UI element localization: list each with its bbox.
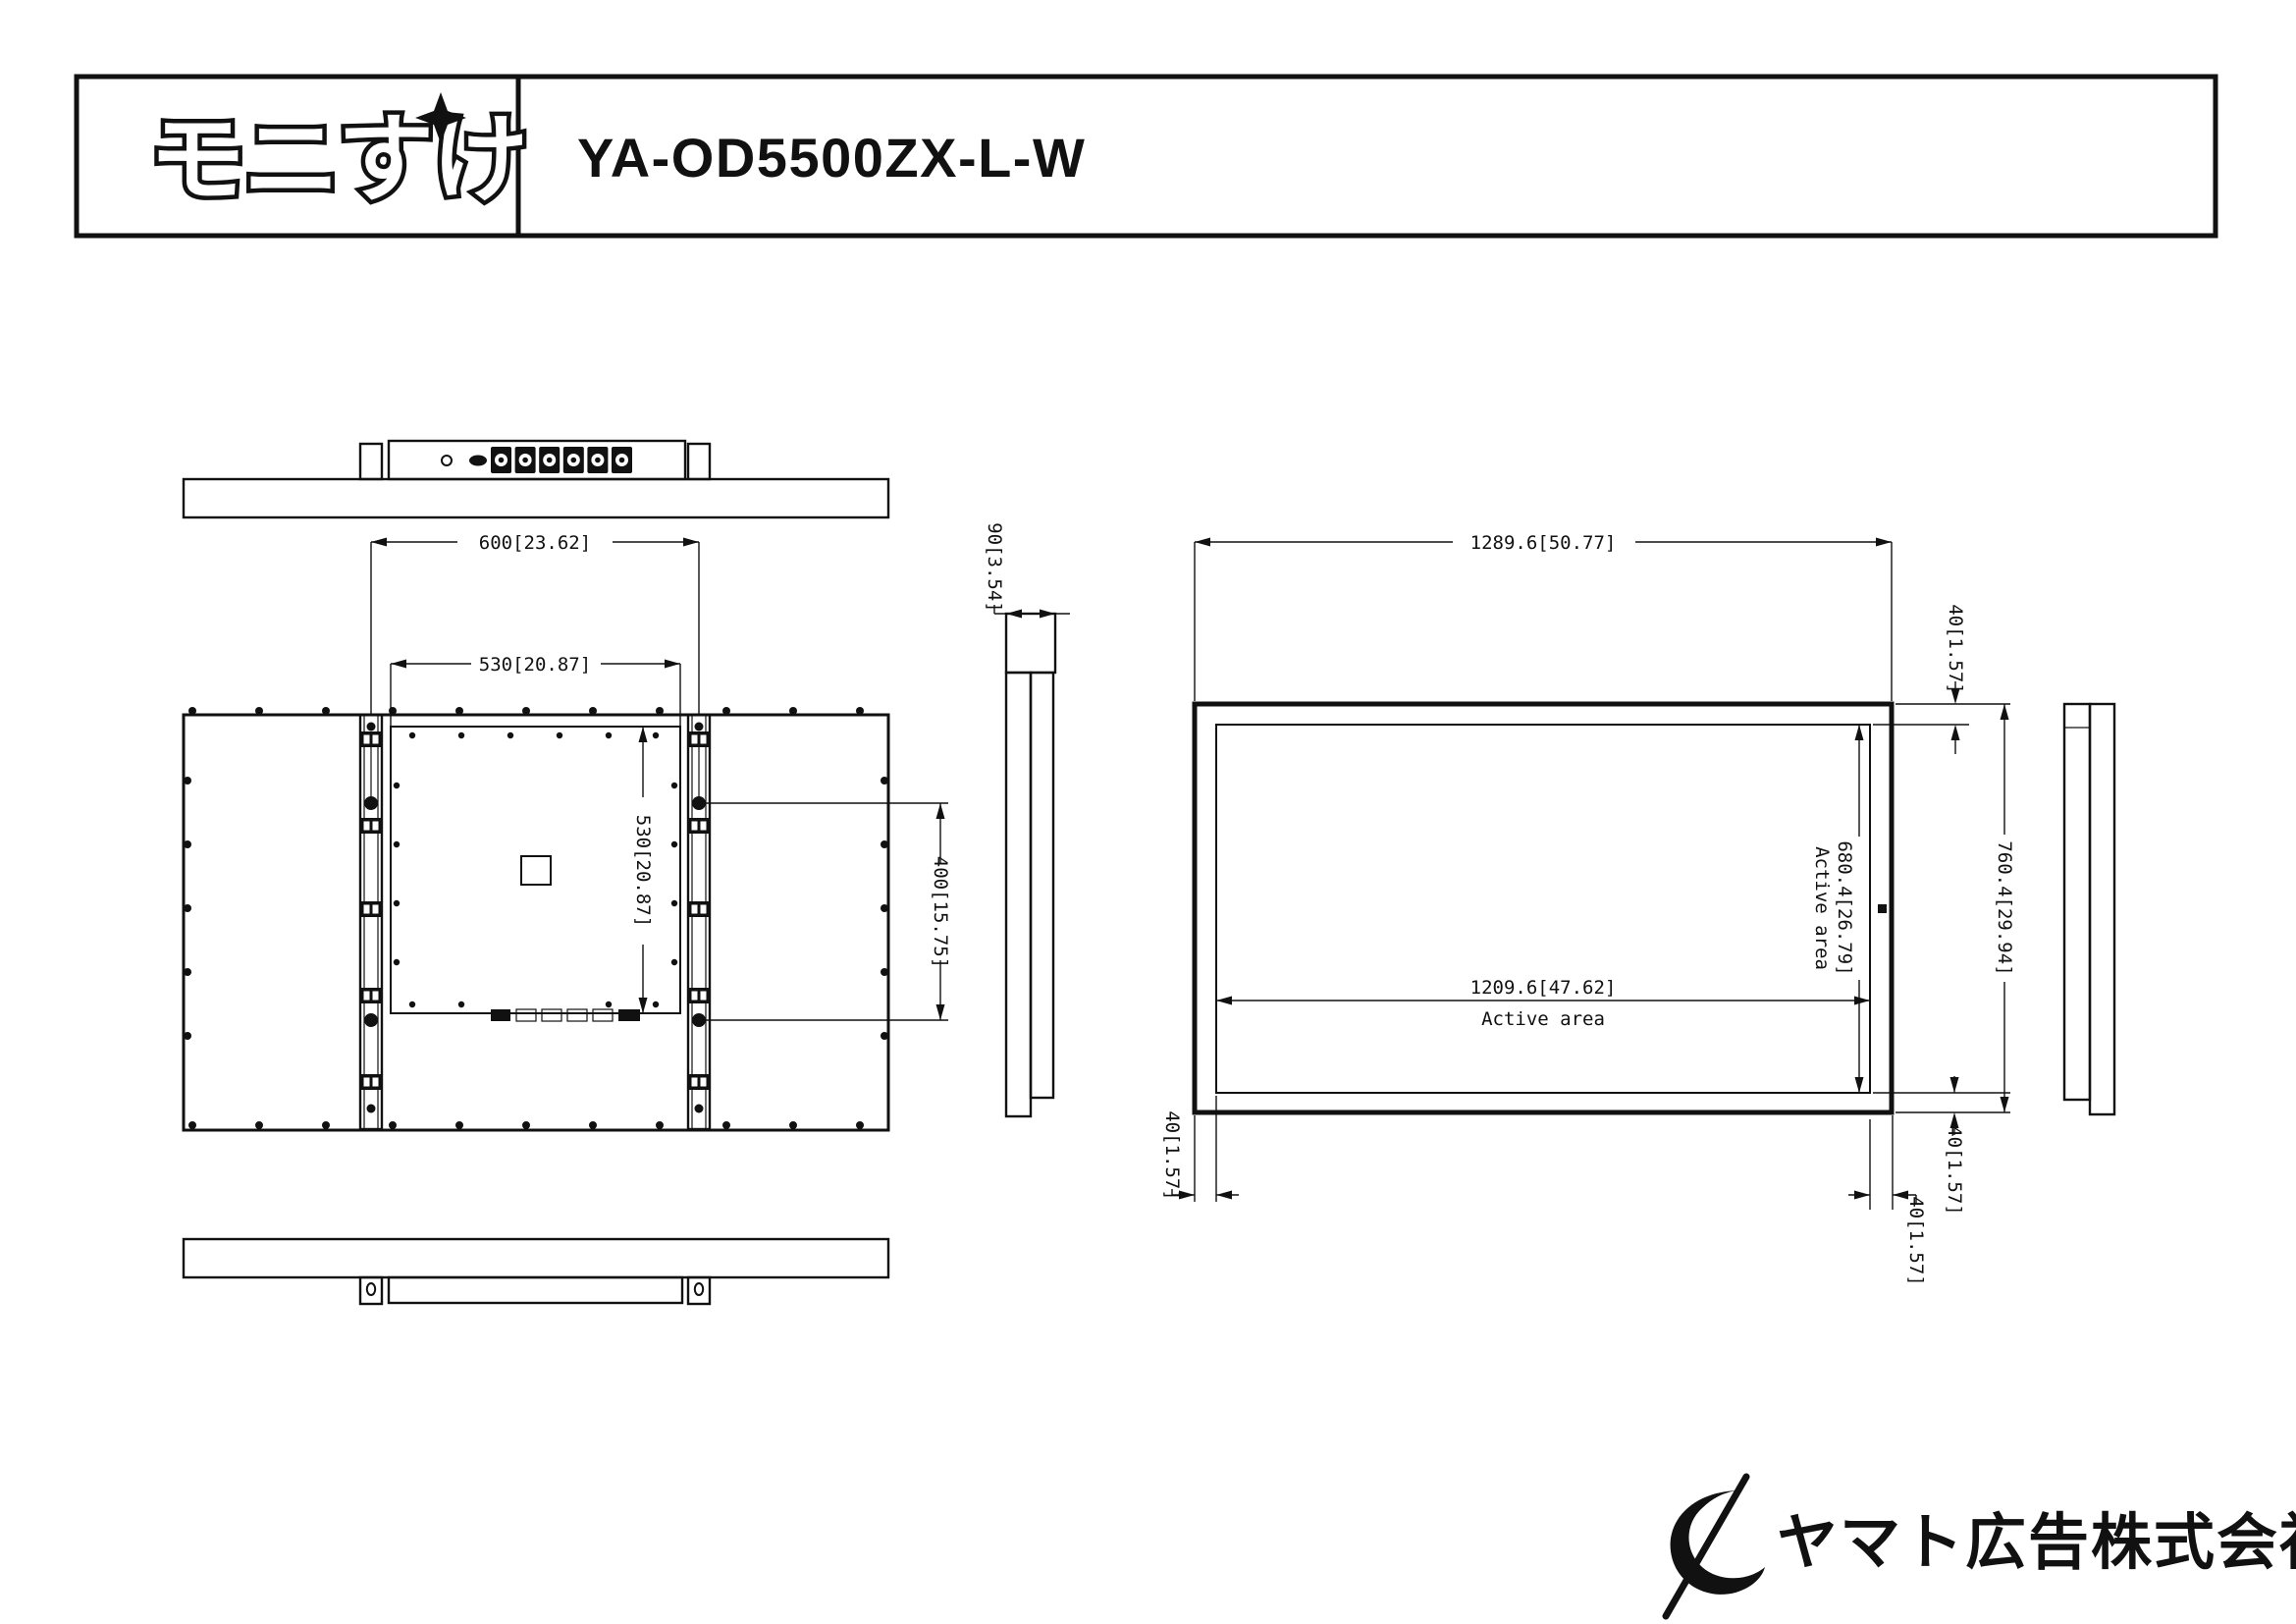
top-view-panel (184, 479, 888, 517)
bottom-view-housing (389, 1277, 682, 1303)
rear-view-body (184, 715, 888, 1130)
side-connector-housing (1006, 614, 1055, 673)
dim-text: 400[15.75] (930, 856, 951, 968)
bottom-view-tab-left (360, 1277, 382, 1304)
dim-label: Active area (1481, 1008, 1605, 1030)
connector-port-icon (563, 447, 584, 473)
connector-port-icon (491, 447, 511, 473)
dim-text: 40[1.57] (1945, 604, 1966, 694)
rear-center-mark (521, 856, 551, 885)
dim-bezel-top: 40[1.57] (1873, 604, 1969, 754)
rear-connector-row (491, 1009, 640, 1021)
rear-rail-left (360, 715, 382, 1129)
top-view-bracket-right (688, 444, 710, 479)
top-view (184, 441, 888, 517)
connector-port-icon (612, 447, 632, 473)
dim-text: 530[20.87] (632, 815, 654, 927)
tab-hole-icon (367, 1283, 375, 1295)
dim-side-depth: 90[3.54] (984, 522, 1070, 618)
connector-port-icon (539, 447, 560, 473)
drawing-sheet: モニすけ YA-OD5500ZX-L-W (0, 0, 2296, 1624)
technical-drawing: モニすけ YA-OD5500ZX-L-W (0, 0, 2296, 1624)
rear-view: 600[23.62] 530[20.87] 530[20.87] 400[15.… (184, 532, 951, 1130)
dim-rear-plate-height: 530[20.87] (632, 727, 654, 1013)
side-back-box (2064, 704, 2090, 1100)
bezel-sensor-mark (1878, 904, 1887, 913)
top-view-bracket-left (360, 444, 382, 479)
front-active-area (1216, 725, 1870, 1093)
rear-rail-right (688, 715, 710, 1129)
dim-text: 40[1.57] (1944, 1125, 1965, 1216)
dim-front-overall-height: 760.4[29.94] (1896, 704, 2015, 1112)
dim-text: 1289.6[50.77] (1470, 532, 1617, 554)
dim-text: 680.4[26.79] (1834, 840, 1855, 975)
top-view-connector-housing (389, 441, 685, 479)
dim-front-active-width: 1209.6[47.62] Active area (1216, 977, 1870, 1030)
connector-port-icon (515, 447, 536, 473)
tab-hole-icon (695, 1283, 703, 1295)
rear-edge-screws (184, 707, 888, 1129)
dim-bezel-right: 40[1.57] (1848, 1115, 1927, 1286)
bottom-view-tab-right (688, 1277, 710, 1304)
model-number: YA-OD5500ZX-L-W (577, 127, 1086, 189)
company-logo: ヤマト広告株式会社 (1666, 1477, 2296, 1616)
connector-port-icon (587, 447, 608, 473)
dim-text: 760.4[29.94] (1994, 840, 2015, 975)
side-panel-profile (1006, 673, 1031, 1116)
power-led-icon (442, 456, 452, 465)
front-bezel (1195, 704, 1892, 1112)
title-block: モニすけ YA-OD5500ZX-L-W (77, 77, 2216, 236)
dim-text: 1209.6[47.62] (1470, 977, 1617, 999)
dim-front-overall-width: 1289.6[50.77] (1195, 532, 1892, 701)
dim-text: 530[20.87] (479, 654, 591, 676)
dim-text: 40[1.57] (1161, 1110, 1183, 1201)
company-name: ヤマト広告株式会社 (1777, 1506, 2296, 1578)
dim-text: 90[3.54] (984, 522, 1005, 613)
front-view: 1289.6[50.77] 1209.6[47.62] Active area … (1161, 532, 2015, 1286)
left-side-view: 90[3.54] (984, 522, 1070, 1116)
bottom-view-panel (184, 1239, 888, 1277)
right-side-view (2064, 704, 2114, 1114)
side-back-box (1031, 673, 1053, 1098)
dim-front-active-height: 680.4[26.79] Active area (1811, 725, 1864, 1093)
dim-text: 40[1.57] (1905, 1196, 1927, 1286)
monisuke-logo-text: モニすけ (149, 104, 526, 216)
ir-sensor-icon (469, 456, 487, 466)
dim-rear-mount-pitch-width: 600[23.62] (371, 532, 699, 715)
bottom-view (184, 1239, 888, 1304)
dim-text: 600[23.62] (479, 532, 591, 554)
dim-rear-mount-pitch-height: 400[15.75] (705, 803, 951, 1020)
dim-label: Active area (1811, 846, 1833, 970)
side-panel-profile (2090, 704, 2114, 1114)
